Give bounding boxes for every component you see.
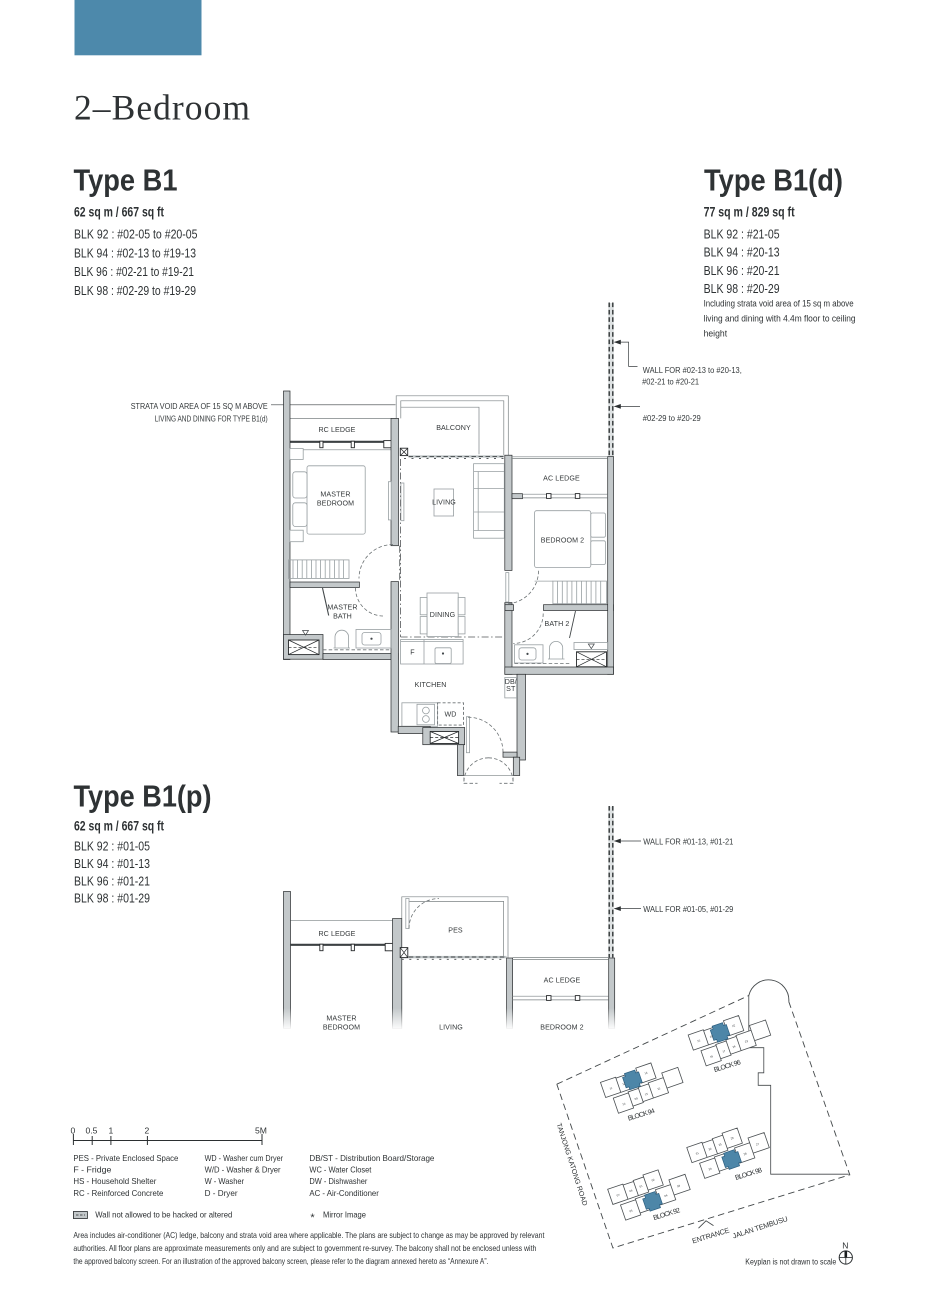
svg-text:DW - Dishwasher: DW - Dishwasher	[309, 1176, 367, 1186]
svg-text:2–Bedroom: 2–Bedroom	[74, 88, 250, 128]
svg-text:BALCONY: BALCONY	[436, 424, 471, 432]
svg-text:0.5: 0.5	[86, 1126, 98, 1136]
svg-text:BEDROOM: BEDROOM	[323, 1024, 360, 1032]
svg-text:BLOCK 98: BLOCK 98	[734, 1167, 763, 1182]
svg-text:living and dining with 4.4m fl: living and dining with 4.4m floor to cei…	[704, 314, 856, 325]
svg-text:W - Washer: W - Washer	[205, 1176, 245, 1186]
svg-text:BLK 98 : #01-29: BLK 98 : #01-29	[74, 890, 150, 905]
svg-text:WD: WD	[444, 711, 456, 719]
svg-text:Type B1(p): Type B1(p)	[74, 779, 212, 814]
svg-text:BLOCK 94: BLOCK 94	[627, 1108, 656, 1123]
svg-text:RC - Reinforced Concrete: RC - Reinforced Concrete	[73, 1188, 163, 1198]
svg-text:authorities. All floor plans a: authorities. All floor plans are approxi…	[73, 1243, 536, 1253]
svg-text:5M: 5M	[255, 1126, 267, 1136]
svg-text:RC LEDGE: RC LEDGE	[318, 426, 355, 434]
svg-text:BLK 92 : #02-05 to #20-05: BLK 92 : #02-05 to #20-05	[74, 227, 198, 242]
svg-text:BEDROOM: BEDROOM	[317, 500, 354, 508]
svg-text:N: N	[842, 1241, 848, 1251]
svg-text:MASTER: MASTER	[327, 604, 357, 612]
svg-text:BLK 98 : #20-29: BLK 98 : #20-29	[704, 281, 780, 296]
svg-text:Type B1: Type B1	[74, 163, 178, 198]
svg-text:1: 1	[109, 1126, 114, 1136]
svg-text:ENTRANCE: ENTRANCE	[691, 1225, 731, 1245]
svg-text:Wall not allowed to be hacked: Wall not allowed to be hacked or altered	[95, 1210, 232, 1220]
svg-text:height: height	[704, 329, 728, 340]
svg-text:ST: ST	[506, 685, 516, 693]
svg-text:BLK 96 : #02-21 to #19-21: BLK 96 : #02-21 to #19-21	[74, 264, 194, 279]
svg-text:F: F	[410, 649, 415, 657]
svg-text:AC LEDGE: AC LEDGE	[543, 475, 580, 483]
svg-text:BEDROOM 2: BEDROOM 2	[540, 1024, 583, 1032]
svg-text:Including strata void area of: Including strata void area of 15 sq m ab…	[704, 298, 854, 309]
svg-text:RC LEDGE: RC LEDGE	[318, 930, 355, 938]
svg-text:F - Fridge: F - Fridge	[73, 1165, 111, 1175]
svg-text:MASTER: MASTER	[320, 491, 350, 499]
svg-text:DB/ST - Distribution Board/Sto: DB/ST - Distribution Board/Storage	[309, 1153, 434, 1163]
svg-text:62 sq m / 667 sq ft: 62 sq m / 667 sq ft	[74, 205, 164, 220]
svg-text:PES - Private Enclosed Space: PES - Private Enclosed Space	[73, 1153, 178, 1163]
svg-text:Type B1(d): Type B1(d)	[704, 163, 843, 198]
svg-text:BLK 92 : #21-05: BLK 92 : #21-05	[704, 226, 780, 241]
svg-text:#02-29 to #20-29: #02-29 to #20-29	[643, 413, 701, 423]
svg-text:HS - Household Shelter: HS - Household Shelter	[73, 1176, 156, 1186]
svg-text:*: *	[310, 1212, 315, 1224]
svg-text:JALAN TEMBUSU: JALAN TEMBUSU	[731, 1214, 789, 1240]
svg-text:77 sq m / 829 sq ft: 77 sq m / 829 sq ft	[704, 205, 795, 220]
svg-text:BLK 92 : #01-05: BLK 92 : #01-05	[74, 838, 150, 853]
svg-text:BATH: BATH	[333, 613, 352, 621]
svg-text:STRATA VOID AREA OF 15 SQ M AB: STRATA VOID AREA OF 15 SQ M ABOVE	[131, 401, 268, 411]
svg-text:PES: PES	[448, 927, 463, 935]
svg-text:BLK 98 : #02-29 to #19-29: BLK 98 : #02-29 to #19-29	[74, 283, 196, 298]
svg-text:Keyplan is not drawn to scale: Keyplan is not drawn to scale	[745, 1258, 836, 1267]
svg-text:BLK 96 : #01-21: BLK 96 : #01-21	[74, 873, 150, 888]
svg-text:2: 2	[145, 1126, 150, 1136]
svg-text:BLK 96 : #20-21: BLK 96 : #20-21	[704, 263, 780, 278]
svg-text:BATH 2: BATH 2	[545, 620, 570, 628]
svg-text:W/D - Washer & Dryer: W/D - Washer & Dryer	[205, 1165, 281, 1175]
svg-text:BLOCK 92: BLOCK 92	[653, 1207, 682, 1222]
svg-text:WC - Water Closet: WC - Water Closet	[309, 1165, 372, 1175]
svg-text:TANJONG KATONG ROAD: TANJONG KATONG ROAD	[555, 1122, 589, 1207]
svg-text:AC LEDGE: AC LEDGE	[544, 977, 581, 985]
svg-text:BLK 94 : #01-13: BLK 94 : #01-13	[74, 856, 150, 871]
svg-text:LIVING: LIVING	[432, 499, 456, 507]
svg-text:LIVING AND DINING FOR TYPE B1: LIVING AND DINING FOR TYPE B1(d)	[155, 413, 268, 423]
svg-text:#02-21 to #20-21: #02-21 to #20-21	[642, 377, 699, 387]
svg-text:Mirror Image: Mirror Image	[323, 1210, 366, 1220]
svg-text:KITCHEN: KITCHEN	[415, 681, 447, 689]
svg-text:WALL FOR #01-13, #01-21: WALL FOR #01-13, #01-21	[643, 837, 733, 847]
svg-text:WALL FOR #01-05, #01-29: WALL FOR #01-05, #01-29	[643, 904, 733, 914]
svg-text:the approved balcony screen. F: the approved balcony screen. For an illu…	[73, 1256, 488, 1266]
svg-text:WD - Washer cum Dryer: WD - Washer cum Dryer	[205, 1153, 284, 1163]
svg-text:MASTER: MASTER	[326, 1015, 356, 1023]
svg-text:DINING: DINING	[430, 611, 455, 619]
svg-text:BEDROOM 2: BEDROOM 2	[541, 537, 584, 545]
svg-text:62 sq m / 667 sq ft: 62 sq m / 667 sq ft	[74, 818, 164, 833]
svg-text:BLK 94 : #20-13: BLK 94 : #20-13	[704, 245, 780, 260]
svg-text:BLK 94 : #02-13 to #19-13: BLK 94 : #02-13 to #19-13	[74, 245, 196, 260]
svg-text:LIVING: LIVING	[439, 1024, 463, 1032]
svg-text:WALL FOR #02-13 to #20-13,: WALL FOR #02-13 to #20-13,	[643, 365, 742, 375]
svg-text:D - Dryer: D - Dryer	[205, 1188, 238, 1198]
svg-text:0: 0	[71, 1126, 76, 1136]
svg-text:AC - Air-Conditioner: AC - Air-Conditioner	[309, 1188, 379, 1198]
svg-text:Area includes air-conditioner: Area includes air-conditioner (AC) ledge…	[73, 1230, 545, 1240]
